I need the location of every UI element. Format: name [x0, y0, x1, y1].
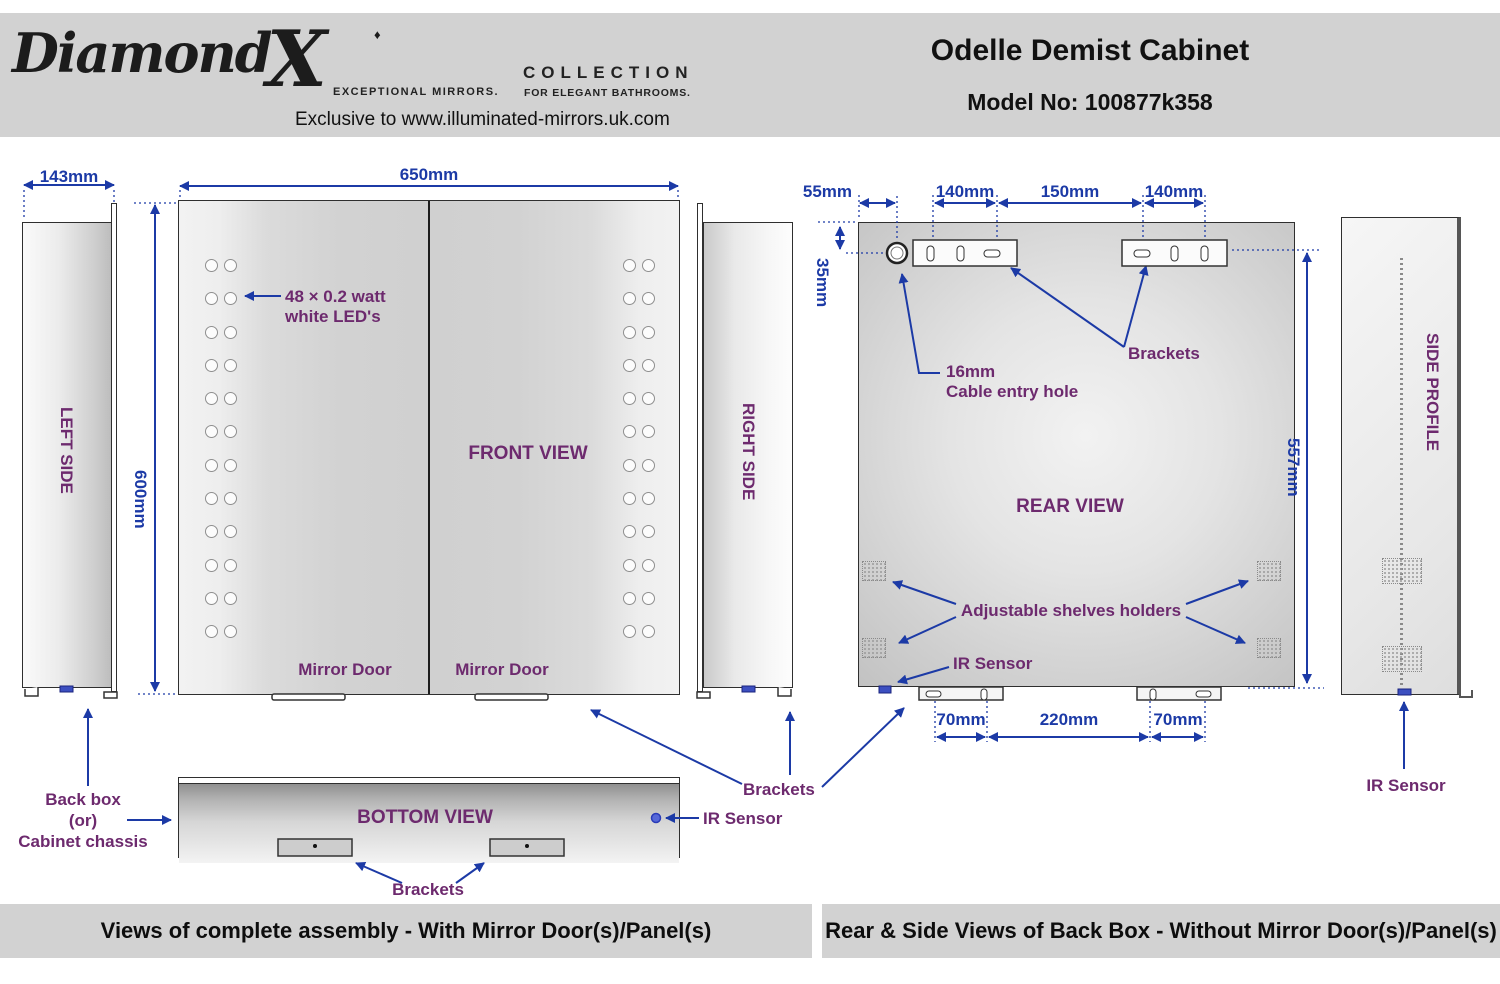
- led-dot: [642, 326, 655, 339]
- led-dot: [224, 592, 237, 605]
- cable-note-line1: 16mm: [946, 362, 1078, 382]
- led-dot: [623, 592, 636, 605]
- led-dot: [205, 592, 218, 605]
- led-dot: [205, 525, 218, 538]
- label-ir-rear: IR Sensor: [953, 654, 1032, 674]
- led-dot: [642, 292, 655, 305]
- label-brackets-bottom: Brackets: [378, 880, 478, 900]
- led-dot: [642, 625, 655, 638]
- dim-rear-b2: 140mm: [1124, 182, 1224, 202]
- left-mirror-door-edge: [111, 203, 117, 692]
- led-dot: [623, 359, 636, 372]
- dim-rear-top: 35mm: [812, 258, 832, 307]
- led-dot: [205, 392, 218, 405]
- model-number: Model No: 100877k358: [880, 89, 1300, 116]
- label-brackets-assembly: Brackets: [743, 780, 815, 800]
- led-dot: [205, 292, 218, 305]
- led-dot: [642, 425, 655, 438]
- led-dot: [623, 559, 636, 572]
- label-mirror-door-left: Mirror Door: [295, 660, 395, 680]
- shelf-holder: [1382, 646, 1422, 672]
- dim-rear-bot-right: 70mm: [1128, 710, 1228, 730]
- led-dot: [205, 559, 218, 572]
- led-dot: [642, 359, 655, 372]
- rear-bottom-bracket-right: [1137, 687, 1221, 700]
- led-dot: [224, 459, 237, 472]
- led-dot: [205, 625, 218, 638]
- shelf-holder: [1257, 561, 1281, 581]
- dim-rear-gap: 150mm: [1020, 182, 1120, 202]
- brand-x-letter: X: [267, 14, 326, 105]
- led-note-line1: 48 × 0.2 watt: [285, 287, 386, 307]
- led-dot: [205, 492, 218, 505]
- label-brackets-rear: Brackets: [1128, 344, 1200, 364]
- shelf-holder: [1382, 558, 1422, 584]
- led-dot: [205, 459, 218, 472]
- label-rear-view: REAR VIEW: [970, 496, 1170, 518]
- back-box-line3: Cabinet chassis: [2, 831, 164, 852]
- dim-rear-height: 557mm: [1283, 438, 1303, 497]
- label-led-note: 48 × 0.2 watt white LED's: [285, 287, 386, 327]
- led-dot: [224, 525, 237, 538]
- led-dot: [224, 392, 237, 405]
- logo-exclusive-text: Exclusive to www.illuminated-mirrors.uk.…: [295, 109, 670, 131]
- label-bottom-view: BOTTOM VIEW: [325, 807, 525, 829]
- label-right-side: RIGHT SIDE: [738, 403, 758, 500]
- led-dot: [623, 292, 636, 305]
- label-shelf-holders: Adjustable shelves holders: [921, 601, 1221, 621]
- logo-tagline-left: EXCEPTIONAL MIRRORS.: [333, 86, 499, 98]
- dim-front-height: 600mm: [130, 470, 150, 529]
- right-hook: [778, 687, 791, 696]
- label-front-view: FRONT VIEW: [428, 443, 628, 465]
- dim-rear-bot-mid: 220mm: [1019, 710, 1119, 730]
- bracket-slot: [1196, 691, 1211, 697]
- technical-drawing-page: DiamondX ♦ EXCEPTIONAL MIRRORS. COLLECTI…: [0, 0, 1500, 984]
- diamond-icon: ♦: [374, 27, 381, 42]
- led-dot: [224, 559, 237, 572]
- bracket-slot: [926, 691, 941, 697]
- back-box-line1: Back box: [2, 789, 164, 810]
- led-dot: [224, 259, 237, 272]
- shelf-holder: [862, 561, 886, 581]
- led-dot: [623, 525, 636, 538]
- label-ir-side: IR Sensor: [1346, 776, 1466, 796]
- shelf-holder: [862, 638, 886, 658]
- right-door-foot: [697, 692, 710, 698]
- led-dot: [205, 425, 218, 438]
- label-mirror-door-right: Mirror Door: [452, 660, 552, 680]
- caption-backbox-views: Rear & Side Views of Back Box - Without …: [822, 904, 1500, 958]
- logo-tagline-right: FOR ELEGANT BATHROOMS.: [524, 87, 691, 99]
- dim-rear-b1: 140mm: [915, 182, 1015, 202]
- dim-left-width: 143mm: [24, 167, 114, 187]
- led-dot: [642, 592, 655, 605]
- led-dot: [205, 359, 218, 372]
- shelf-holder: [1257, 638, 1281, 658]
- led-dot: [224, 326, 237, 339]
- led-dot: [205, 326, 218, 339]
- bracket-slot: [981, 689, 987, 700]
- led-dot: [224, 492, 237, 505]
- ir-sensor-rear: [879, 686, 891, 693]
- led-dot: [642, 559, 655, 572]
- brand-script-text: Diamond: [12, 21, 271, 85]
- header-band: DiamondX ♦ EXCEPTIONAL MIRRORS. COLLECTI…: [0, 13, 1500, 137]
- left-door-foot: [104, 692, 117, 698]
- dim-rear-offset: 55mm: [792, 182, 852, 202]
- back-box-line2: (or): [2, 810, 164, 831]
- led-note-line2: white LED's: [285, 307, 386, 327]
- label-left-side: LEFT SIDE: [56, 407, 76, 494]
- shelf-track: [1400, 258, 1403, 688]
- led-dot: [642, 525, 655, 538]
- rear-bottom-bracket-left: [919, 687, 1003, 700]
- dim-front-width: 650mm: [178, 165, 680, 185]
- caption-assembly-views: Views of complete assembly - With Mirror…: [0, 904, 812, 958]
- led-dot: [224, 625, 237, 638]
- logo-collection: COLLECTION: [523, 63, 694, 83]
- led-dot: [205, 259, 218, 272]
- bracket-slot: [1150, 689, 1156, 700]
- led-dot: [642, 492, 655, 505]
- led-dot: [642, 459, 655, 472]
- left-hook: [25, 687, 38, 696]
- led-dot: [642, 392, 655, 405]
- page-title: Odelle Demist Cabinet: [880, 34, 1300, 68]
- led-dot: [623, 425, 636, 438]
- led-dot: [224, 292, 237, 305]
- led-column-left-outer: [205, 259, 218, 638]
- label-cable-note: 16mm Cable entry hole: [946, 362, 1078, 402]
- cable-note-line2: Cable entry hole: [946, 382, 1078, 402]
- side-profile-hook: [1460, 687, 1472, 697]
- label-ir-bottom: IR Sensor: [703, 809, 782, 829]
- led-dot: [623, 392, 636, 405]
- led-dot: [642, 259, 655, 272]
- brand-logo: DiamondX: [12, 21, 325, 99]
- led-dot: [224, 425, 237, 438]
- led-column-right-outer: [642, 259, 655, 638]
- led-dot: [623, 625, 636, 638]
- label-side-profile: SIDE PROFILE: [1422, 333, 1442, 451]
- dim-rear-bot-left: 70mm: [911, 710, 1011, 730]
- label-back-box-note: Back box (or) Cabinet chassis: [2, 789, 164, 852]
- led-column-left-inner: [224, 259, 237, 638]
- led-dot: [623, 326, 636, 339]
- led-dot: [224, 359, 237, 372]
- led-dot: [623, 492, 636, 505]
- led-dot: [623, 259, 636, 272]
